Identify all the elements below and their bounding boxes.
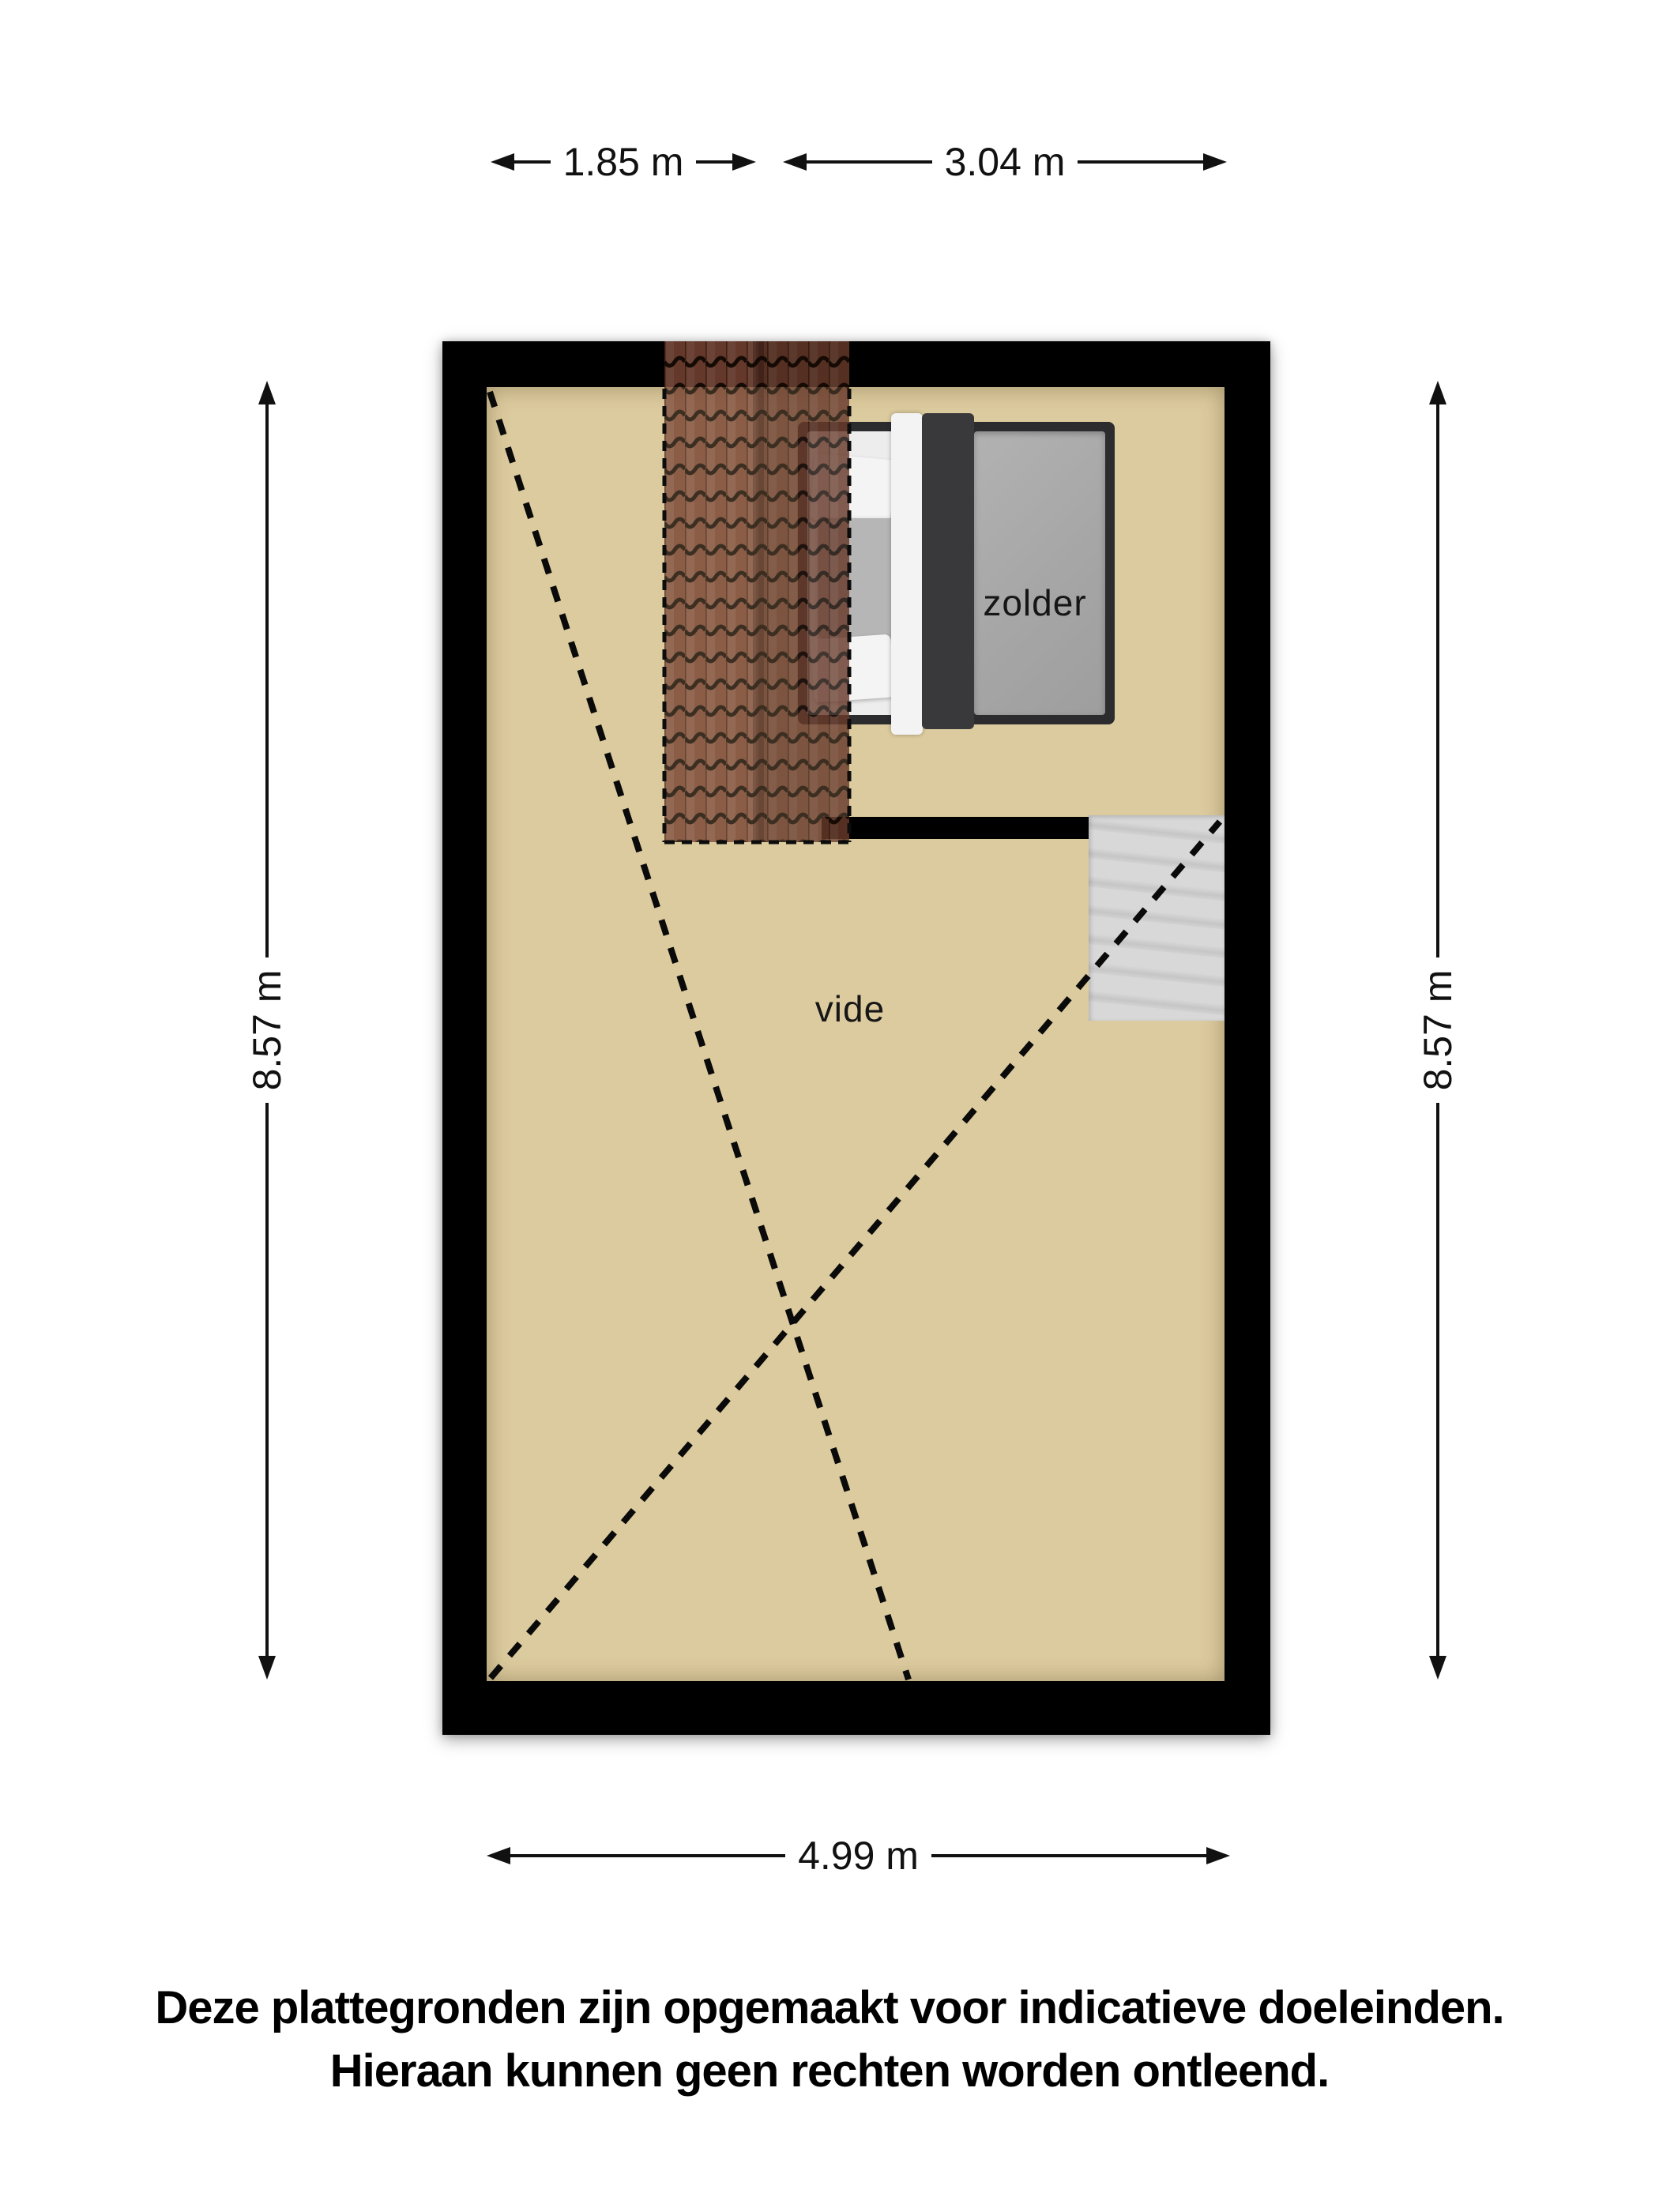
arrow-left-icon: [491, 153, 514, 171]
arrow-down-icon: [258, 1656, 276, 1680]
arrow-right-icon: [1203, 153, 1227, 171]
disclaimer-line-2: Hieraan kunnen geen rechten worden ontle…: [0, 2040, 1659, 2103]
disclaimer-line-1: Deze plattegronden zijn opgemaakt voor i…: [0, 1977, 1659, 2040]
arrow-left-icon: [487, 1847, 510, 1864]
dimension-label-left: 8.57 m: [251, 957, 283, 1104]
dimension-label-top-right: 3.04 m: [932, 146, 1078, 178]
dimension-label-right: 8.57 m: [1422, 957, 1454, 1104]
arrow-left-icon: [783, 153, 807, 171]
room-label-vide: vide: [815, 987, 885, 1030]
dimension-top-right: 3.04 m: [783, 146, 1227, 178]
dimension-right: 8.57 m: [1422, 381, 1454, 1680]
arrow-right-icon: [1206, 1847, 1230, 1864]
dimension-label-top-left: 1.85 m: [551, 146, 697, 178]
arrow-right-icon: [732, 153, 756, 171]
dimension-left: 8.57 m: [251, 381, 283, 1680]
arrow-down-icon: [1429, 1656, 1446, 1680]
dimension-label-bottom: 4.99 m: [785, 1840, 931, 1872]
roof-slope-line-left: [490, 392, 908, 1680]
roof-slope-lines: [0, 0, 1659, 2212]
arrow-up-icon: [258, 381, 276, 404]
roof-slope-line-right: [491, 822, 1220, 1678]
arrow-up-icon: [1429, 381, 1446, 404]
room-label-zolder: zolder: [983, 581, 1086, 624]
disclaimer-text: Deze plattegronden zijn opgemaakt voor i…: [0, 1977, 1659, 2103]
dimension-top-left: 1.85 m: [491, 146, 756, 178]
dimension-bottom: 4.99 m: [487, 1840, 1230, 1872]
floorplan-page: zolder vide 1.85 m 3.04 m 8.57 m 8.57 m …: [0, 0, 1659, 2212]
